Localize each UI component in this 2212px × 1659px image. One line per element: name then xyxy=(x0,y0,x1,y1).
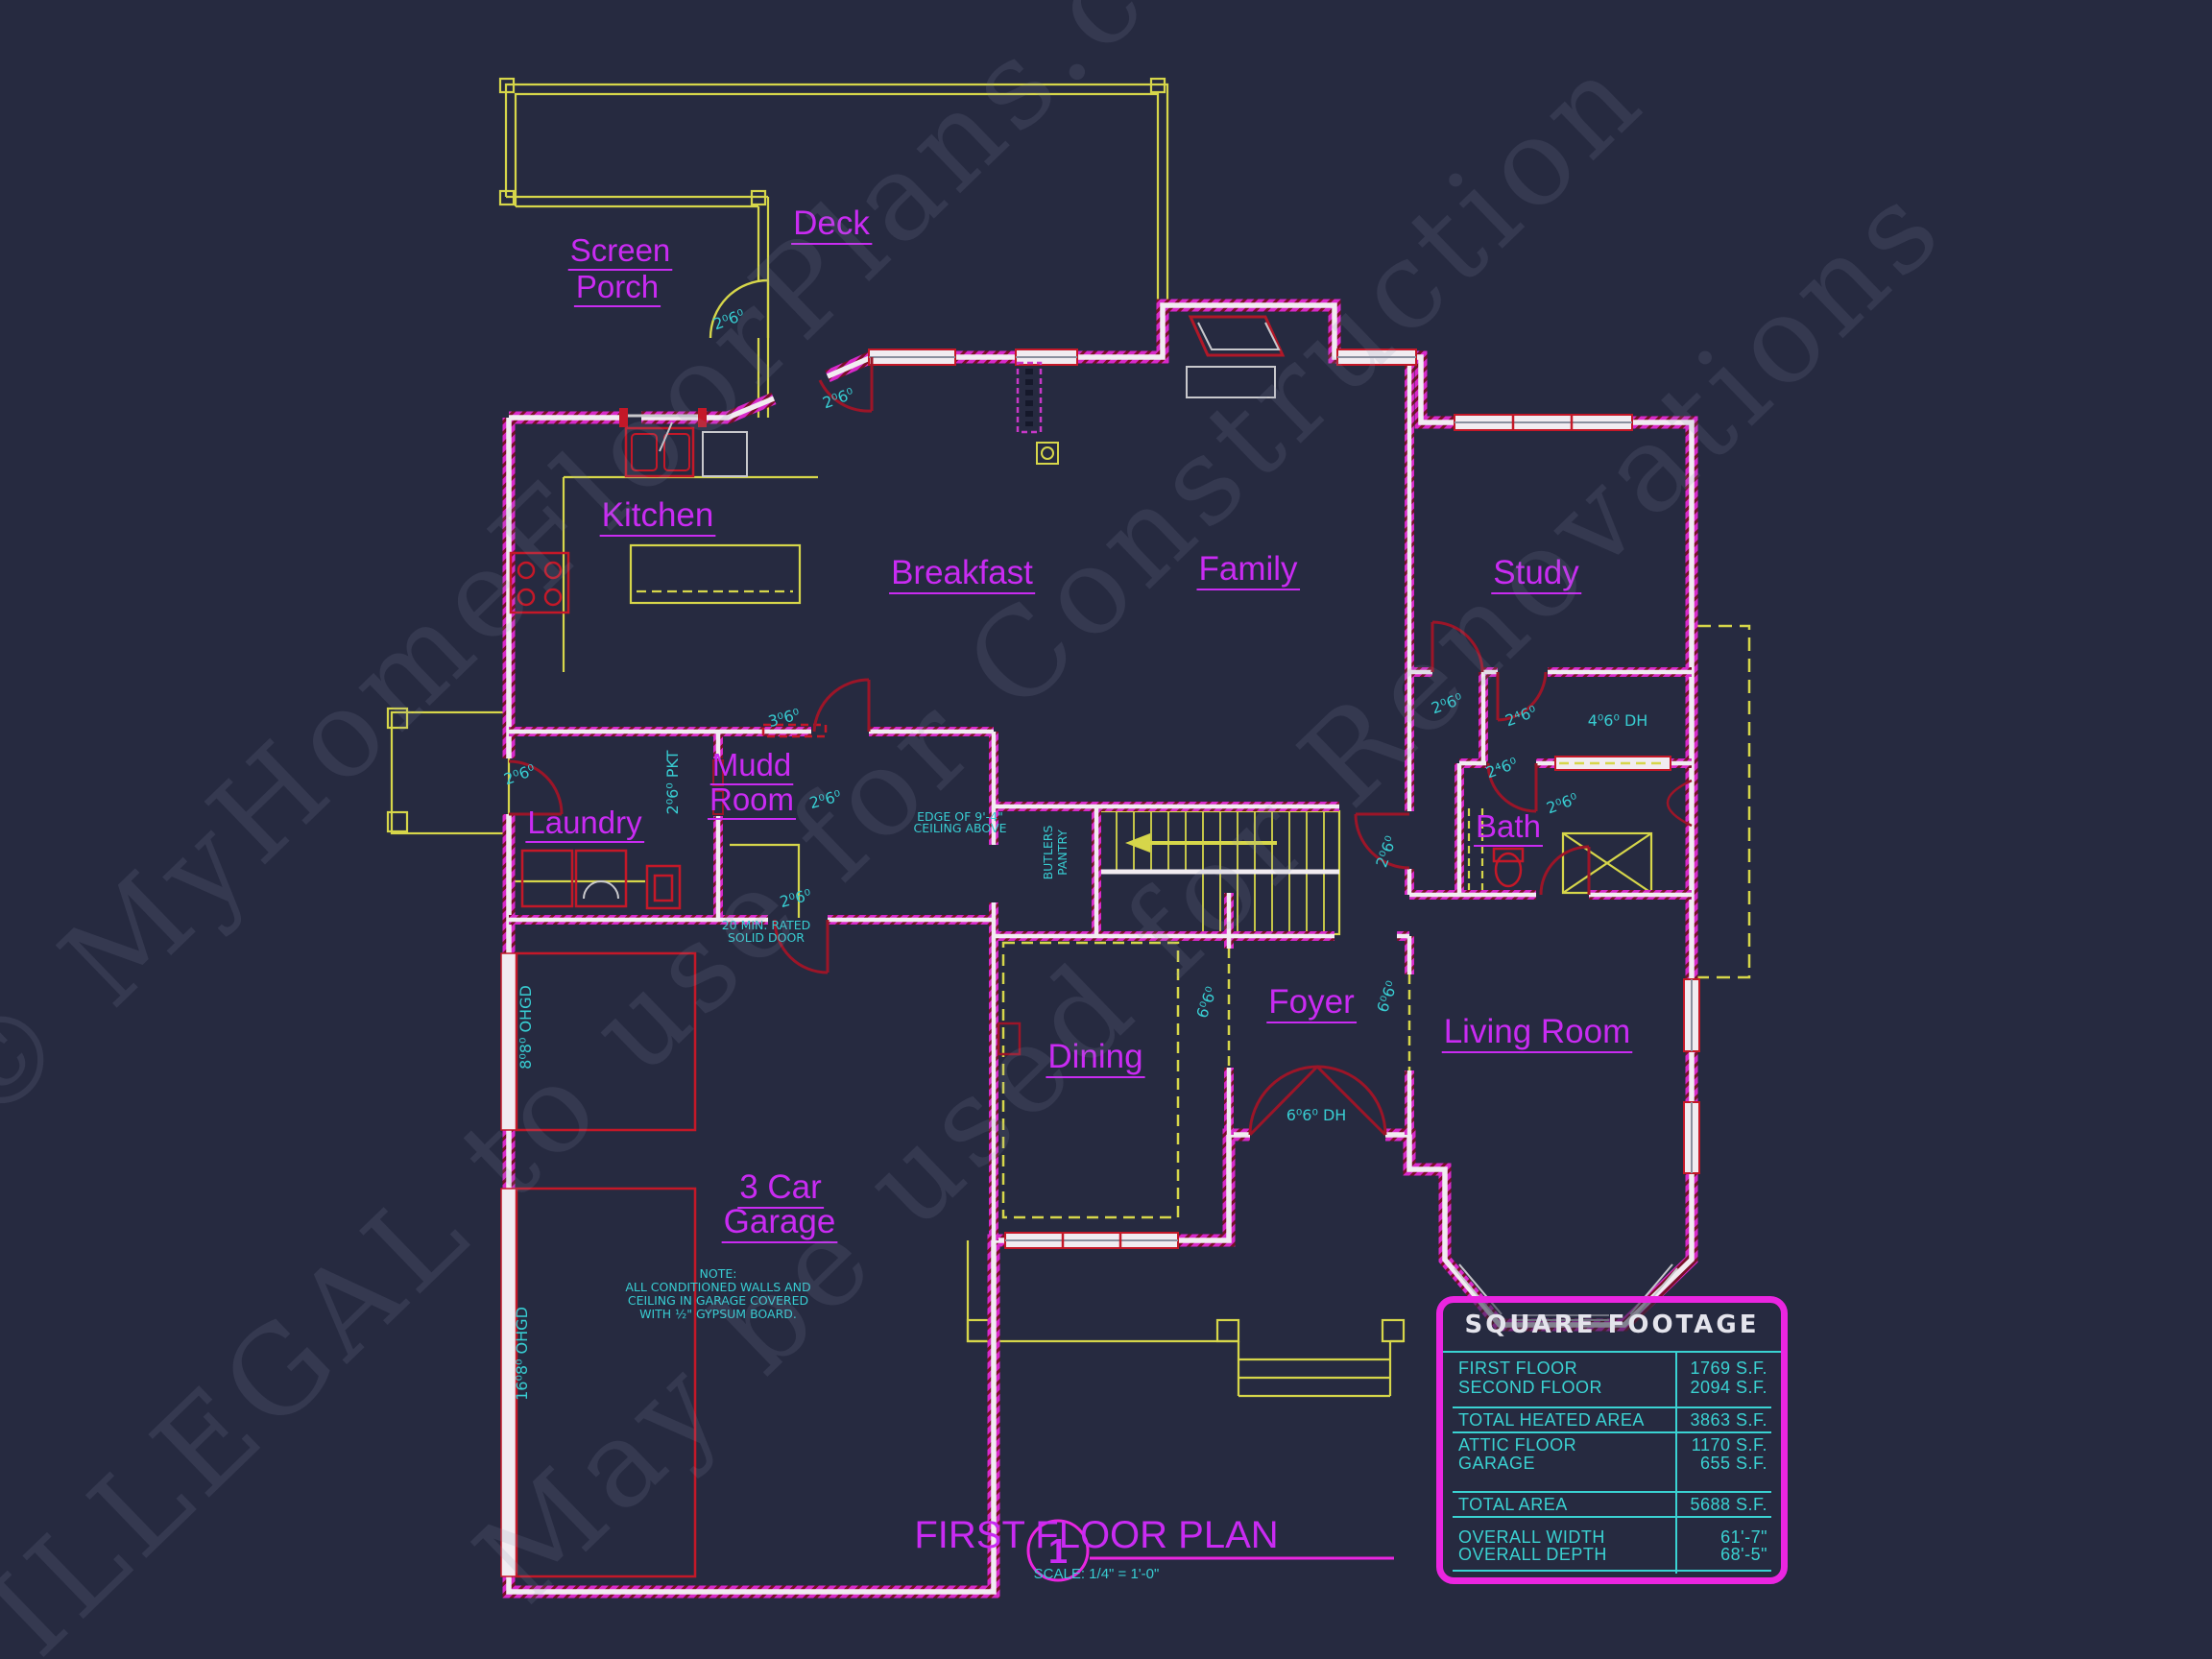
bath-hall-door xyxy=(1541,847,1589,895)
front-double-door xyxy=(1250,1067,1385,1135)
table-title-separator xyxy=(1443,1351,1781,1353)
door-size-bath: 2⁴6⁰ xyxy=(1483,754,1520,781)
floor-plan-page: 2⁰6⁰ 2⁰6⁰ 2⁰6⁰ 2⁰6⁰ PKT 3⁰6⁰ 2⁰6⁰ 2⁰6⁰ 2… xyxy=(0,0,2212,1659)
label-porch: Porch xyxy=(576,269,659,304)
window-size-bath: 4⁰6⁰ DH xyxy=(1588,711,1648,730)
front-porch-and-steps xyxy=(968,1240,1404,1396)
breakfast-column xyxy=(1037,443,1058,464)
row-value: 2094 S.F. xyxy=(1690,1378,1767,1397)
plan-title: FIRST FLOOR PLAN xyxy=(914,1514,1278,1556)
door-size-laundry-ext: 2⁰6⁰ xyxy=(501,760,538,788)
chimney-chase xyxy=(1018,363,1041,432)
row-label: TOTAL HEATED AREA xyxy=(1458,1410,1645,1430)
garage-door-16-size: 16⁰8⁰ OHGD xyxy=(513,1307,531,1401)
label-laundry: Laundry xyxy=(527,805,642,840)
row-value: 1769 S.F. xyxy=(1690,1358,1767,1378)
toilet xyxy=(1494,849,1523,886)
title-block: 1 FIRST FLOOR PLAN SCALE: 1/4" = 1'-0" xyxy=(914,1514,1394,1582)
row-label: SECOND FLOOR xyxy=(1458,1378,1602,1397)
row-label: OVERALL WIDTH xyxy=(1458,1527,1605,1547)
row-label: FIRST FLOOR xyxy=(1458,1358,1577,1378)
table-rule xyxy=(1453,1407,1771,1408)
washer-dryer xyxy=(522,851,626,906)
label-bath: Bath xyxy=(1476,808,1541,844)
label-living-room: Living Room xyxy=(1444,1013,1631,1050)
row-value: 5688 S.F. xyxy=(1690,1495,1767,1514)
table-rule xyxy=(1453,1516,1771,1518)
table-bottom-rule xyxy=(1453,1570,1771,1572)
plan-scale: SCALE: 1/4" = 1'-0" xyxy=(1034,1566,1160,1582)
label-screen: Screen xyxy=(570,232,671,268)
butlers-pantry-2: PANTRY xyxy=(1055,829,1070,876)
table-row-first-floor: FIRST FLOOR 1769 S.F. xyxy=(1458,1358,1767,1378)
row-label: TOTAL AREA xyxy=(1458,1495,1568,1514)
row-label: OVERALL DEPTH xyxy=(1458,1545,1607,1564)
table-row-total-area: TOTAL AREA 5688 S.F. xyxy=(1458,1495,1767,1514)
row-value: 3863 S.F. xyxy=(1690,1410,1767,1430)
door-size-bath-hall: 2⁰6⁰ xyxy=(1544,789,1580,817)
table-title: SQUARE FOOTAGE xyxy=(1443,1310,1781,1339)
pocket-door-size: 2⁰6⁰ PKT xyxy=(663,750,682,814)
dining-windows xyxy=(1005,1233,1178,1248)
row-value: 1170 S.F. xyxy=(1692,1435,1767,1455)
row-label: ATTIC FLOOR xyxy=(1458,1435,1576,1455)
table-rule xyxy=(1453,1491,1771,1493)
row-value: 655 S.F. xyxy=(1700,1454,1767,1473)
floor-plan-canvas: 2⁰6⁰ 2⁰6⁰ 2⁰6⁰ 2⁰6⁰ PKT 3⁰6⁰ 2⁰6⁰ 2⁰6⁰ 2… xyxy=(0,0,2212,1659)
row-value: 61'-7" xyxy=(1720,1527,1767,1547)
table-rule xyxy=(1453,1431,1771,1433)
square-footage-table: SQUARE FOOTAGE FIRST FLOOR 1769 S.F. SEC… xyxy=(1436,1296,1788,1584)
butlers-pantry-1: BUTLERS xyxy=(1041,826,1055,880)
door-size-family-hall: 2⁰6⁰ xyxy=(1372,833,1400,870)
row-value: 68'-5" xyxy=(1720,1545,1767,1564)
front-door-size: 6⁰6⁰ DH xyxy=(1286,1106,1347,1124)
door-size-hall-closet: 2⁴6⁰ xyxy=(1503,702,1539,730)
opening-size-living: 6⁰6⁰ xyxy=(1373,978,1401,1015)
roof-overhang-dashed xyxy=(1697,626,1749,977)
table-row-garage: GARAGE 655 S.F. xyxy=(1458,1454,1767,1473)
table-row-second-floor: SECOND FLOOR 2094 S.F. xyxy=(1458,1378,1767,1397)
row-label: GARAGE xyxy=(1458,1454,1535,1473)
bath-window xyxy=(1555,757,1671,770)
table-row-attic: ATTIC FLOOR 1170 S.F. xyxy=(1458,1435,1767,1455)
table-row-total-heated: TOTAL HEATED AREA 3863 S.F. xyxy=(1458,1410,1767,1430)
label-mudd: Mudd xyxy=(712,747,792,782)
table-row-overall-depth: OVERALL DEPTH 68'-5" xyxy=(1458,1545,1767,1564)
table-row-overall-width: OVERALL WIDTH 61'-7" xyxy=(1458,1527,1767,1547)
label-foyer: Foyer xyxy=(1268,983,1355,1021)
